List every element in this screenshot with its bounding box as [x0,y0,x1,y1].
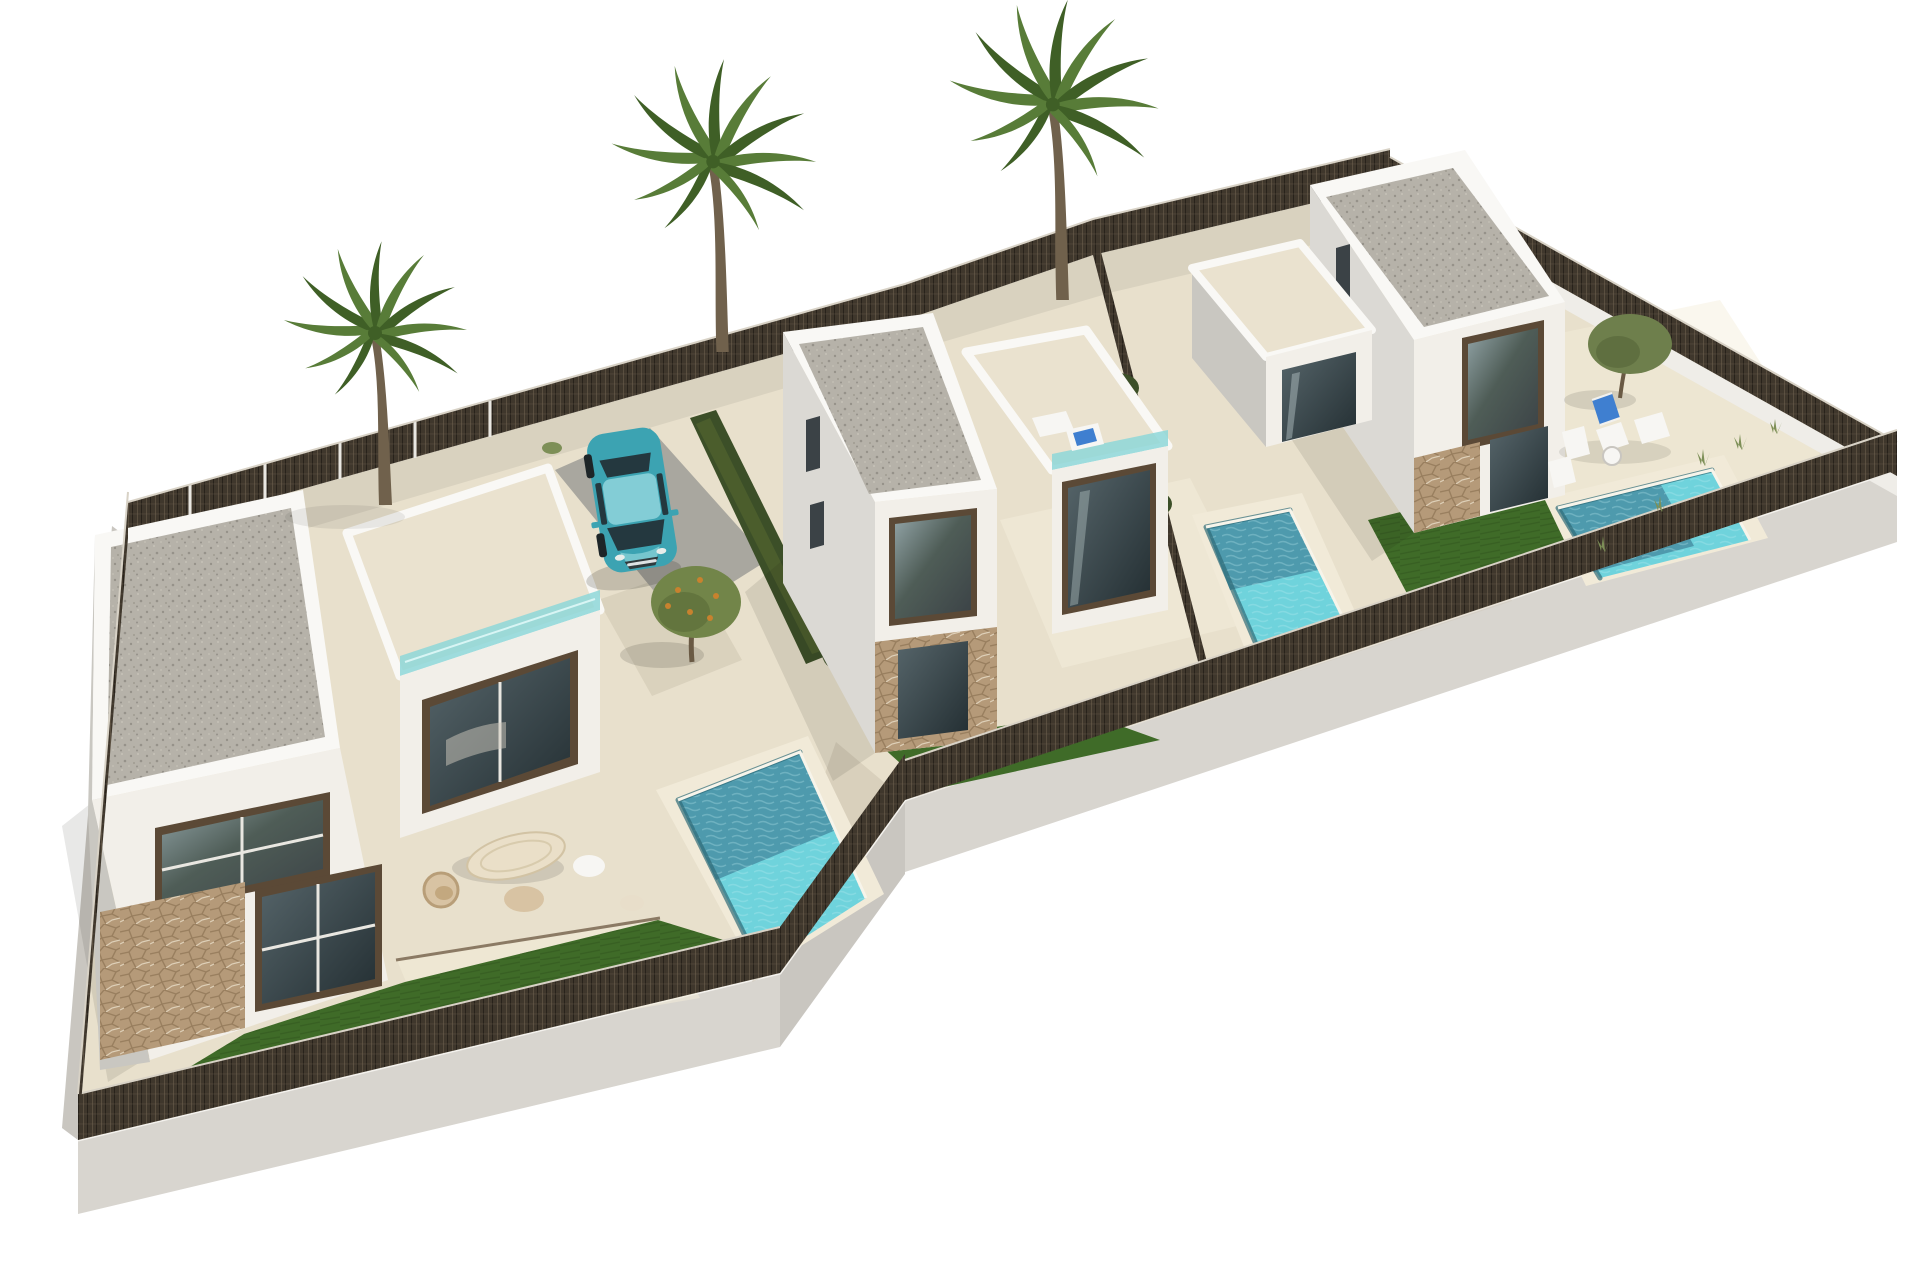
palm-2-crown [706,155,719,168]
palm-2-fronds [610,58,816,235]
basket-chair-seat [435,886,453,900]
palm-1-shadow [285,505,405,529]
orange-tree-canopy-shade [658,592,710,632]
villa-3-upper-window-glass [1468,328,1538,440]
pouf-white [573,855,605,877]
palm-tree-2 [610,58,816,352]
villa-1-roof-gravel [107,508,325,785]
villa-2-side-window-2 [810,501,824,549]
villa-2-upper-window-glass [895,515,971,619]
render-canvas: Aerial 3D rendering of three new-build v… [0,0,1920,1280]
villa-2-lower-window [898,641,968,739]
pouf-tan [504,886,544,912]
palm-1-fronds [283,241,467,398]
pouf-small [620,895,644,911]
car-roof [602,472,663,526]
architectural-render: Aerial 3D rendering of three new-build v… [0,0,1920,1280]
palm-3-fronds [948,0,1159,181]
palm-2-trunk [709,164,729,352]
olive-tree-canopy-shade [1596,336,1640,368]
agave-plot1-rear [542,442,562,454]
villa-2-side-window-1 [806,416,820,472]
villa-3-lower-window [1490,426,1548,512]
palm-3-crown [1046,98,1060,112]
palm-1-crown [368,326,382,340]
bistro-table [1603,447,1621,465]
